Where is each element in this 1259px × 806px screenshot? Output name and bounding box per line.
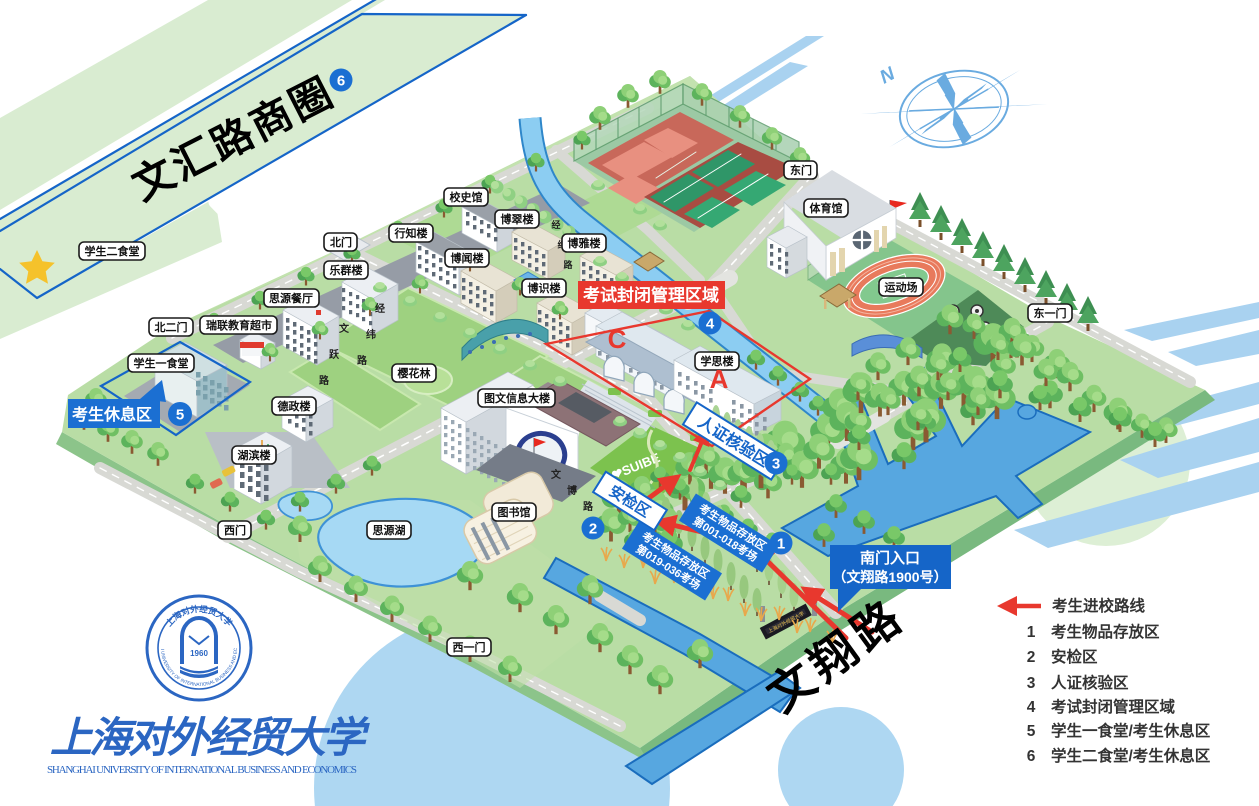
svg-text:西门: 西门 — [224, 523, 246, 537]
svg-text:博雅楼: 博雅楼 — [568, 236, 601, 250]
svg-text:A: A — [710, 364, 729, 394]
svg-text:思源餐厅: 思源餐厅 — [269, 291, 313, 305]
svg-text:行知楼: 行知楼 — [394, 226, 428, 240]
svg-text:德政楼: 德政楼 — [277, 399, 311, 413]
svg-text:博: 博 — [567, 484, 577, 497]
svg-text:1: 1 — [1027, 624, 1036, 641]
svg-text:4: 4 — [706, 316, 715, 333]
svg-text:樱花林: 樱花林 — [398, 366, 431, 380]
svg-text:路: 路 — [563, 259, 573, 270]
svg-text:图书馆: 图书馆 — [498, 505, 531, 519]
svg-text:北二门: 北二门 — [155, 320, 188, 334]
svg-text:考试封闭管理区域: 考试封闭管理区域 — [1051, 697, 1176, 716]
svg-text:文: 文 — [551, 468, 562, 481]
svg-text:6: 6 — [337, 73, 345, 90]
svg-text:学生二食堂/考生休息区: 学生二食堂/考生休息区 — [1051, 746, 1211, 765]
svg-text:图文信息大楼: 图文信息大楼 — [484, 391, 550, 405]
svg-text:经: 经 — [375, 302, 385, 315]
svg-text:1: 1 — [777, 536, 785, 553]
svg-text:2: 2 — [589, 521, 597, 538]
svg-text:考生进校路线: 考生进校路线 — [1052, 596, 1146, 615]
svg-text:文: 文 — [339, 322, 350, 335]
svg-text:北门: 北门 — [330, 235, 352, 249]
svg-text:4: 4 — [1027, 699, 1036, 716]
svg-text:SHANGHAI UNIVERSITY OF INTERNA: SHANGHAI UNIVERSITY OF INTERNATIONAL BUS… — [47, 764, 357, 776]
svg-text:西一门: 西一门 — [453, 640, 486, 654]
svg-text:5: 5 — [1027, 723, 1036, 740]
svg-text:考生休息区: 考生休息区 — [72, 405, 152, 424]
svg-text:瑞联教育超市: 瑞联教育超市 — [206, 318, 272, 332]
svg-text:2: 2 — [1027, 649, 1036, 666]
svg-text:3: 3 — [772, 456, 780, 473]
svg-text:博闻楼: 博闻楼 — [451, 251, 484, 265]
svg-text:南门入口: 南门入口 — [860, 549, 920, 567]
svg-text:C: C — [608, 324, 627, 354]
svg-text:考生物品存放区: 考生物品存放区 — [1051, 622, 1160, 641]
svg-text:6: 6 — [1027, 748, 1036, 765]
svg-text:3: 3 — [1027, 675, 1036, 692]
svg-text:路: 路 — [583, 500, 594, 513]
svg-text:1960: 1960 — [190, 649, 208, 658]
svg-text:体育馆: 体育馆 — [810, 201, 843, 215]
svg-text:东一门: 东一门 — [1034, 306, 1067, 320]
svg-text:纬: 纬 — [366, 328, 376, 341]
svg-text:东门: 东门 — [790, 163, 812, 177]
svg-text:安检区: 安检区 — [1051, 647, 1098, 666]
svg-text:人证核验区: 人证核验区 — [1051, 673, 1129, 692]
svg-text:跃: 跃 — [329, 348, 340, 361]
svg-text:路: 路 — [319, 374, 330, 387]
svg-text:校史馆: 校史馆 — [450, 190, 483, 204]
svg-text:湖滨楼: 湖滨楼 — [238, 448, 271, 462]
svg-text:经: 经 — [551, 219, 560, 230]
svg-text:乐群楼: 乐群楼 — [330, 263, 363, 277]
svg-text:学生二食堂: 学生二食堂 — [85, 244, 140, 258]
svg-text:路: 路 — [357, 354, 368, 367]
svg-text:思源湖: 思源湖 — [373, 523, 406, 537]
svg-text:学生一食堂/考生休息区: 学生一食堂/考生休息区 — [1051, 721, 1211, 740]
svg-text:博翠楼: 博翠楼 — [501, 212, 534, 226]
svg-text:考试封闭管理区域: 考试封闭管理区域 — [582, 285, 719, 305]
svg-text:5: 5 — [176, 407, 184, 424]
svg-text:博识楼: 博识楼 — [528, 281, 561, 295]
svg-text:学生一食堂: 学生一食堂 — [134, 356, 189, 370]
svg-text:上海对外经贸大学: 上海对外经贸大学 — [50, 715, 370, 762]
svg-text:运动场: 运动场 — [885, 280, 918, 294]
svg-text:（文翔路1900号）: （文翔路1900号） — [832, 569, 947, 585]
